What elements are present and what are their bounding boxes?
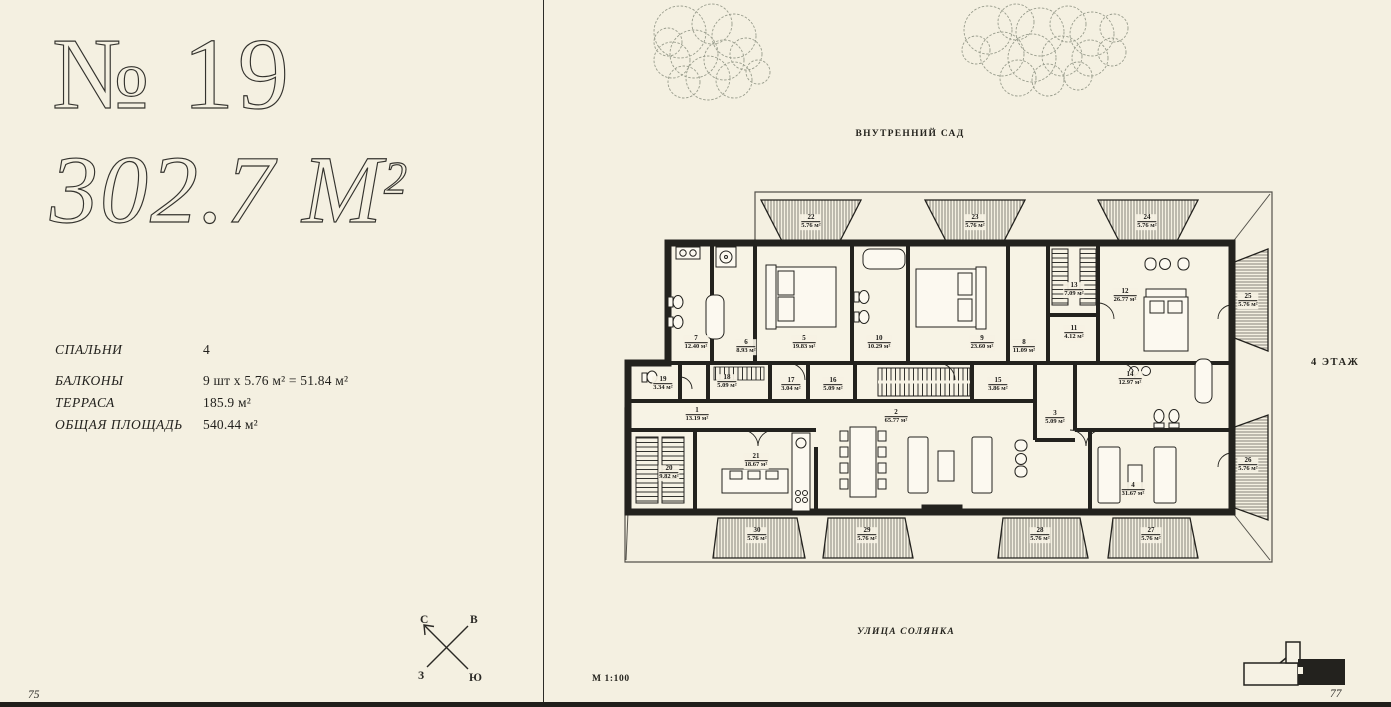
spec-label: СПАЛЬНИ	[55, 341, 203, 359]
room-label: 113.19 м²	[685, 407, 710, 423]
spec-table: СПАЛЬНИ 4 БАЛКОНЫ 9 шт x 5.76 м² = 51.84…	[55, 341, 405, 438]
page-title: № 19	[52, 24, 293, 126]
room-label-number: 4	[1122, 482, 1145, 489]
room-label-area: 5.09 м²	[1045, 418, 1064, 426]
room-label: 209.82 м²	[658, 465, 679, 481]
room-label: 712.40 м²	[684, 335, 709, 351]
page-title-area: 302.7 М2	[50, 142, 409, 238]
page-divider-line	[543, 0, 544, 707]
balcony-label: 295.76 м²	[856, 527, 877, 543]
balcony-label-number: 24	[1137, 214, 1156, 221]
room-label-number: 11	[1064, 325, 1083, 332]
room-label-area: 3.04 м²	[781, 385, 800, 393]
balcony-label-area: 5.76 м²	[1238, 465, 1257, 473]
room-label-number: 6	[736, 339, 755, 346]
room-label-number: 7	[685, 335, 708, 342]
trees-illustration	[628, 2, 788, 106]
room-label: 811.09 м²	[1012, 339, 1036, 355]
balcony-label-number: 29	[857, 527, 876, 534]
room-label-number: 3	[1045, 410, 1064, 417]
garden-label: ВНУТРЕННИЙ САД	[855, 129, 964, 139]
floor-plan-labels: 113.19 м²265.77 м²35.09 м²431.67 м²519.8…	[620, 185, 1282, 577]
balcony-label-number: 27	[1141, 527, 1160, 534]
room-label-area: 12.97 м²	[1119, 379, 1142, 387]
room-label-area: 7.09 м²	[1064, 290, 1083, 298]
floor-plan: 113.19 м²265.77 м²35.09 м²431.67 м²519.8…	[620, 185, 1282, 577]
balcony-label: 255.76 м²	[1237, 293, 1258, 309]
balcony-label-area: 5.76 м²	[801, 222, 820, 230]
compass-south-label: Ю	[469, 672, 482, 684]
compass-east-label: В	[470, 614, 478, 626]
spec-value: 540.44 м²	[203, 416, 258, 434]
balcony-label: 275.76 м²	[1140, 527, 1161, 543]
room-label: 923.60 м²	[970, 335, 995, 351]
balcony-label: 305.76 м²	[746, 527, 767, 543]
balcony-label-area: 5.76 м²	[1137, 222, 1156, 230]
balcony-label-number: 30	[747, 527, 766, 534]
room-label-area: 11.09 м²	[1013, 347, 1035, 355]
balcony-label-area: 5.76 м²	[965, 222, 984, 230]
balcony-label-number: 26	[1238, 457, 1257, 464]
balcony-label-area: 5.76 м²	[1141, 535, 1160, 543]
building-locator-icon	[1240, 636, 1350, 692]
balcony-label: 225.76 м²	[800, 214, 821, 230]
room-label-area: 9.82 м²	[659, 473, 678, 481]
balcony-label-number: 22	[801, 214, 820, 221]
spec-label: БАЛКОНЫ	[55, 372, 203, 390]
room-label: 2118.67 м²	[744, 453, 769, 469]
room-label-number: 19	[653, 376, 672, 383]
balcony-label-number: 25	[1238, 293, 1257, 300]
room-label-area: 31.67 м²	[1122, 490, 1145, 498]
room-label-number: 16	[823, 377, 842, 384]
room-label: 193.34 м²	[652, 376, 673, 392]
room-label-number: 12	[1114, 288, 1137, 295]
balcony-label-number: 28	[1030, 527, 1049, 534]
balcony-label: 285.76 м²	[1029, 527, 1050, 543]
room-label-area: 26.77 м²	[1114, 296, 1137, 304]
room-label: 68.93 м²	[735, 339, 756, 355]
room-label-area: 12.40 м²	[685, 343, 708, 351]
room-label: 185.09 м²	[716, 374, 737, 390]
room-label-number: 20	[659, 465, 678, 472]
room-label-area: 4.12 м²	[1064, 333, 1083, 341]
room-label-area: 65.77 м²	[885, 417, 908, 425]
room-label-number: 15	[988, 377, 1007, 384]
balcony-label-area: 5.76 м²	[1238, 301, 1257, 309]
room-label-number: 10	[868, 335, 891, 342]
spec-row: БАЛКОНЫ 9 шт x 5.76 м² = 51.84 м²	[55, 372, 405, 390]
spec-label: ОБЩАЯ ПЛОЩАДЬ	[55, 416, 203, 434]
room-label-area: 13.19 м²	[686, 415, 709, 423]
page-bottom-edge	[0, 702, 1391, 707]
room-label-number: 2	[885, 409, 908, 416]
room-label-area: 3.86 м²	[988, 385, 1007, 393]
room-label: 265.77 м²	[884, 409, 909, 425]
room-label-number: 13	[1064, 282, 1083, 289]
room-label: 35.09 м²	[1044, 410, 1065, 426]
room-label-area: 8.93 м²	[736, 347, 755, 355]
page-number-right: 77	[1330, 688, 1342, 700]
room-label: 153.86 м²	[987, 377, 1008, 393]
area-value: 302.7 М	[50, 136, 384, 243]
spec-value: 4	[203, 341, 210, 359]
compass-west-label: З	[418, 670, 424, 682]
room-label-number: 18	[717, 374, 736, 381]
room-label: 1226.77 м²	[1113, 288, 1138, 304]
room-label-number: 1	[686, 407, 709, 414]
room-label-number: 14	[1119, 371, 1142, 378]
street-label: УЛИЦА СОЛЯНКА	[857, 627, 955, 637]
scale-label: М 1:100	[592, 674, 630, 684]
spec-value: 9 шт x 5.76 м² = 51.84 м²	[203, 372, 348, 390]
balcony-label: 245.76 м²	[1136, 214, 1157, 230]
spec-row: ОБЩАЯ ПЛОЩАДЬ 540.44 м²	[55, 416, 405, 434]
floor-label: 4 ЭТАЖ	[1311, 357, 1359, 368]
room-label: 1412.97 м²	[1118, 371, 1143, 387]
room-label-area: 23.60 м²	[971, 343, 994, 351]
balcony-label: 235.76 м²	[964, 214, 985, 230]
room-label-number: 17	[781, 377, 800, 384]
balcony-label-area: 5.76 м²	[857, 535, 876, 543]
room-label-area: 18.67 м²	[745, 461, 768, 469]
spec-label: ТЕРРАСА	[55, 394, 203, 412]
spec-value: 185.9 м²	[203, 394, 251, 412]
room-label: 114.12 м²	[1063, 325, 1084, 341]
trees-illustration	[948, 2, 1148, 98]
room-label: 519.83 м²	[792, 335, 817, 351]
room-label-area: 5.09 м²	[823, 385, 842, 393]
balcony-label-area: 5.76 м²	[1030, 535, 1049, 543]
room-label-number: 8	[1013, 339, 1035, 346]
page-number-left: 75	[28, 689, 40, 701]
brochure-page: № 19 302.7 М2 СПАЛЬНИ 4 БАЛКОНЫ 9 шт x 5…	[0, 0, 1391, 707]
spec-row: ТЕРРАСА 185.9 м²	[55, 394, 405, 412]
room-label-area: 10.29 м²	[868, 343, 891, 351]
room-label-number: 5	[793, 335, 816, 342]
balcony-label-area: 5.76 м²	[747, 535, 766, 543]
balcony-label-number: 23	[965, 214, 984, 221]
room-label-area: 5.09 м²	[717, 382, 736, 390]
room-label-area: 3.34 м²	[653, 384, 672, 392]
room-label: 431.67 м²	[1121, 482, 1146, 498]
room-label-number: 21	[745, 453, 768, 460]
compass-rose: С В З Ю	[410, 612, 484, 688]
spec-row: СПАЛЬНИ 4	[55, 341, 405, 359]
room-label: 137.09 м²	[1063, 282, 1084, 298]
room-label-number: 9	[971, 335, 994, 342]
compass-north-label: С	[420, 614, 428, 626]
room-label-area: 19.83 м²	[793, 343, 816, 351]
room-label: 1010.29 м²	[867, 335, 892, 351]
room-label: 165.09 м²	[822, 377, 843, 393]
room-label: 173.04 м²	[780, 377, 801, 393]
area-superscript: 2	[384, 152, 409, 203]
balcony-label: 265.76 м²	[1237, 457, 1258, 473]
